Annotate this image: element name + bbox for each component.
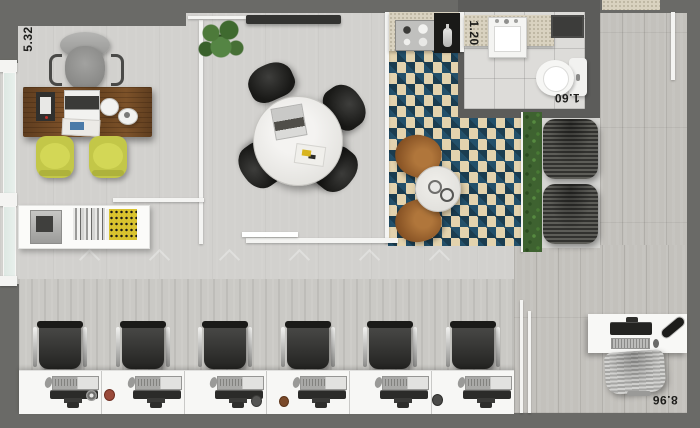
monitor-base	[232, 402, 244, 408]
executive-chair-arm	[49, 54, 62, 86]
plant-icon	[198, 20, 246, 64]
executive-chair	[48, 30, 122, 92]
bathroom-sink-basin	[494, 26, 521, 52]
window-frame-mid	[0, 193, 17, 206]
task-chair	[281, 321, 335, 371]
mouse-icon	[653, 339, 659, 348]
entrance-threshold	[602, 0, 660, 10]
task-chair	[116, 321, 170, 371]
monitor-base	[315, 402, 327, 408]
printer-screen	[36, 216, 53, 232]
glass-partition-right-b	[528, 311, 531, 413]
keyboard-icon	[300, 376, 347, 390]
mug-icon	[251, 395, 262, 407]
workstation	[349, 371, 432, 414]
keyboard-icon	[135, 376, 182, 390]
magazine-yellow	[106, 209, 137, 240]
executive-office-partition	[113, 198, 204, 202]
kitchen-rug-upper	[388, 51, 462, 119]
glass-partition-right-a	[520, 300, 523, 413]
workstation	[432, 371, 514, 414]
monitor-base	[67, 402, 79, 408]
monitor-base	[480, 402, 492, 408]
office-floor-plan: 5.32 1.20 1.60 8.96	[0, 0, 700, 428]
reception-chair	[604, 349, 667, 395]
dimension-label-bathroom: 1.60	[547, 91, 587, 105]
toilet-flush-button	[576, 74, 580, 81]
visitor-chair-yellow	[89, 136, 127, 178]
dimension-label-openspace: 8.96	[645, 392, 685, 407]
keyboard-icon	[52, 376, 99, 390]
faucet-handle-icon	[514, 19, 518, 23]
toilet-bowl-inner	[543, 66, 569, 92]
executive-chair-body	[65, 46, 105, 90]
monitor-base	[397, 402, 409, 408]
dimension-label-kitchen: 1.20	[467, 15, 481, 51]
books-row	[73, 208, 105, 240]
workstation	[184, 371, 267, 414]
lounge-armchair	[543, 119, 598, 179]
keyboard-icon	[465, 376, 512, 390]
cup-dot	[124, 112, 130, 118]
meeting-papers-accent	[302, 149, 312, 156]
meeting-room-sliding-door	[242, 232, 298, 237]
task-chair	[446, 321, 500, 371]
desk-phone-screen	[40, 97, 51, 114]
faucet-icon	[504, 19, 509, 24]
bottle-icon	[443, 28, 452, 47]
laptop-icon	[270, 103, 307, 140]
meeting-room-wall-inner-top	[188, 16, 246, 19]
window-frame-bottom	[0, 276, 17, 286]
window-glass	[3, 72, 16, 195]
hedge-planter	[523, 112, 542, 252]
mug-icon	[279, 396, 289, 407]
bottle-cap-icon	[446, 24, 449, 30]
wall-bottom	[0, 413, 700, 428]
workstation	[267, 371, 350, 414]
cooktop-icon	[395, 20, 435, 51]
wall-tv	[246, 15, 341, 24]
monitor-base	[150, 402, 162, 408]
task-chair	[198, 321, 252, 371]
entrance-door	[671, 12, 675, 80]
keyboard-icon	[382, 376, 429, 390]
coffee-cup-icon	[440, 188, 454, 202]
meeting-room-wall-south	[246, 238, 398, 243]
lounge-armchair	[543, 184, 598, 244]
keyboard-icon	[611, 338, 650, 349]
dimension-label-office-width: 5.32	[21, 21, 35, 57]
task-chair	[363, 321, 417, 371]
window-frame-top	[0, 60, 17, 72]
keyboard-icon	[217, 376, 264, 390]
wall-left-lower	[0, 284, 19, 428]
mug-icon	[432, 394, 443, 406]
wall-right	[687, 0, 700, 428]
wall-left-upper	[0, 0, 18, 63]
desk-plant-icon	[86, 390, 97, 401]
window-glass	[3, 206, 16, 278]
mug-icon	[104, 389, 115, 401]
desk-magazine-photo	[70, 122, 84, 130]
bathroom-shelf	[551, 15, 584, 38]
monitor-icon	[610, 322, 652, 335]
cup-icon	[100, 98, 119, 116]
executive-chair-arm	[111, 54, 124, 86]
desk-phone-led	[45, 116, 48, 119]
task-chair	[33, 321, 87, 371]
visitor-chair-yellow	[36, 136, 74, 178]
faucet-handle-icon	[495, 19, 499, 23]
